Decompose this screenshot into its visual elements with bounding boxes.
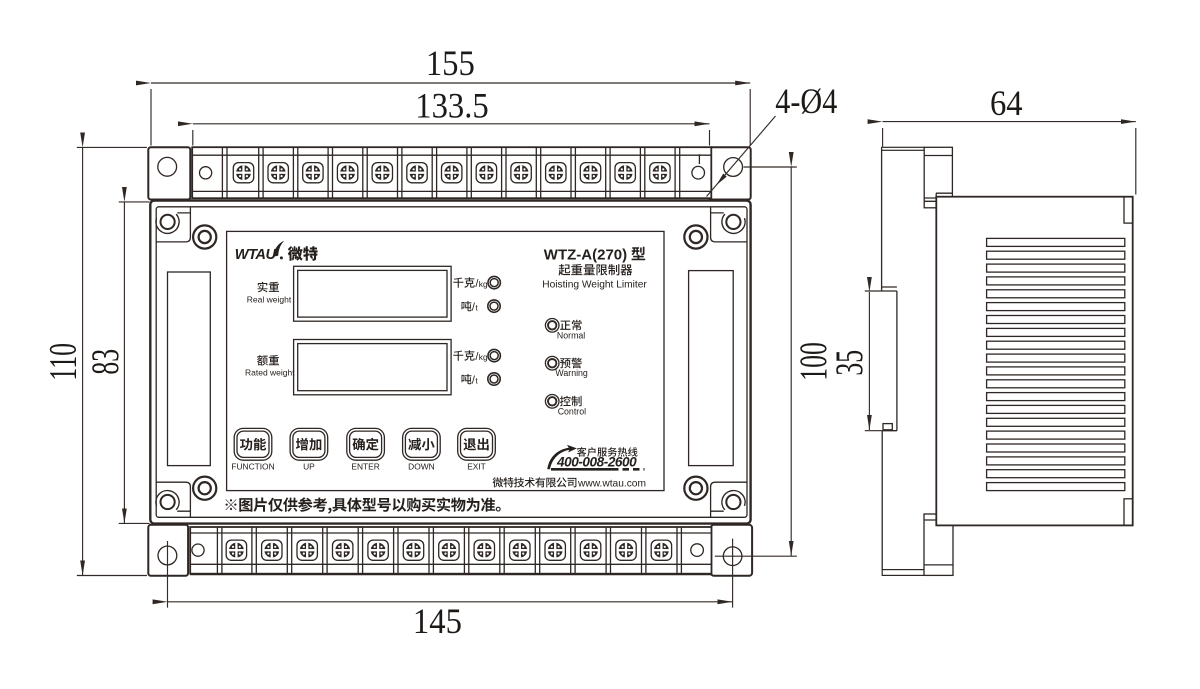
svg-text:64: 64 xyxy=(990,85,1023,124)
svg-text:145: 145 xyxy=(413,603,462,642)
svg-text:Rated weight: Rated weight xyxy=(245,367,295,377)
svg-text:83: 83 xyxy=(85,349,127,375)
svg-text:35: 35 xyxy=(829,350,871,376)
svg-text:4-Ø4: 4-Ø4 xyxy=(775,83,837,122)
svg-text:155: 155 xyxy=(426,45,475,84)
svg-text:Real weight: Real weight xyxy=(247,294,292,304)
svg-text:Warning: Warning xyxy=(555,368,588,378)
svg-text:kg: kg xyxy=(479,279,488,289)
svg-text:ENTER: ENTER xyxy=(351,461,379,471)
svg-text:WTZ-A(270): WTZ-A(270) xyxy=(544,246,627,263)
svg-text:FUNCTION: FUNCTION xyxy=(231,461,274,471)
svg-text:400-008-2600: 400-008-2600 xyxy=(556,455,637,470)
svg-text:WTAU: WTAU xyxy=(235,247,277,263)
svg-text:kg: kg xyxy=(479,352,488,362)
svg-text:Normal: Normal xyxy=(557,330,585,340)
svg-text:Hoisting Weight Limiter: Hoisting Weight Limiter xyxy=(542,279,647,290)
svg-text:110: 110 xyxy=(42,343,84,381)
svg-text:EXIT: EXIT xyxy=(467,461,486,471)
svg-text:DOWN: DOWN xyxy=(408,461,435,471)
svg-text:www.wtau.com: www.wtau.com xyxy=(577,479,646,490)
svg-text:133.5: 133.5 xyxy=(415,87,488,126)
svg-text:Control: Control xyxy=(558,406,586,416)
svg-text:UP: UP xyxy=(303,461,315,471)
